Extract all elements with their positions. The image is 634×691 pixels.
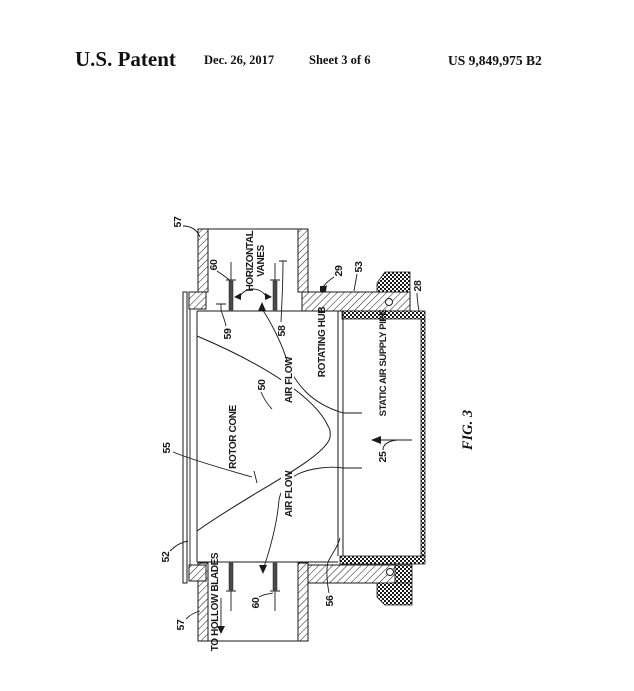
patent-drawing-svg: U.S. Patent Dec. 26, 2017 Sheet 3 of 6 U…	[0, 0, 634, 691]
label-52: 52	[160, 551, 172, 562]
pipe-bottom-wall	[340, 556, 425, 564]
label-50: 50	[256, 379, 268, 390]
leader-50	[261, 392, 272, 409]
vane-pivot-tee-59	[216, 304, 226, 310]
label-57-bottom: 57	[175, 619, 187, 630]
bottom-left-flange-foot	[189, 565, 206, 581]
leader-29	[323, 277, 334, 287]
figure-caption: FIG. 3	[460, 410, 476, 451]
label-59: 59	[222, 328, 234, 339]
label-28: 28	[412, 280, 424, 291]
top-left-flange-foot	[189, 292, 206, 309]
patent-header-sheet: Sheet 3 of 6	[309, 53, 370, 67]
horizontal-vane-top-left	[226, 262, 236, 310]
rotating-hub-bottom	[302, 565, 412, 605]
label-60-bottom: 60	[250, 597, 262, 608]
rotor-cone-profile-curve	[197, 336, 330, 531]
label-25: 25	[377, 451, 389, 462]
label-56: 56	[324, 595, 336, 606]
horizontal-vane-bottom-right	[270, 563, 280, 611]
hub-bolt-hole-top	[386, 299, 393, 306]
air-flow-arrow-bottom	[259, 565, 267, 574]
top-duct-left-wall	[198, 229, 208, 292]
air-feed-arrow-25	[371, 436, 412, 444]
label-vanes: VANES	[256, 244, 267, 276]
leader-58	[281, 261, 283, 322]
label-static-air-supply-pipe: STATIC AIR SUPPLY PIPE	[378, 310, 389, 417]
leader-57-top	[183, 226, 200, 237]
label-air-flow-top: AIR FLOW	[284, 356, 295, 403]
label-air-flow-bottom: AIR FLOW	[284, 470, 295, 517]
hub-seal-block-bottom	[377, 583, 412, 605]
leader-60-bottom	[259, 593, 273, 597]
leader-60-top	[217, 271, 230, 281]
leader-25	[383, 440, 397, 450]
pipe-right-wall	[421, 319, 425, 556]
hub-seal-block-top	[377, 272, 410, 292]
label-29: 29	[333, 265, 345, 276]
label-60-top: 60	[208, 259, 220, 270]
leader-59	[221, 310, 226, 326]
label-rotating-hub: ROTATING HUB	[317, 307, 328, 378]
patent-header: U.S. Patent Dec. 26, 2017 Sheet 3 of 6 U…	[75, 47, 542, 71]
outer-plate-52	[183, 292, 187, 583]
horizontal-vane-top-right	[270, 263, 280, 310]
leader-28	[417, 293, 419, 311]
air-flow-line-top	[262, 309, 362, 413]
bottom-duct-right-wall	[298, 563, 308, 641]
label-horizontal: HORIZONTAL	[245, 230, 256, 291]
hub-seal-corner-bottom	[395, 565, 412, 583]
label-58: 58	[276, 325, 288, 336]
hub-flange-bottom	[302, 565, 395, 583]
air-flow-line-bottom	[264, 467, 362, 567]
patent-header-date: Dec. 26, 2017	[204, 53, 274, 67]
figure-fig3: 57 60 HORIZONTAL VANES 59 58 29 53 28 RO…	[160, 216, 476, 651]
label-to-hollow-blades: TO HOLLOW BLADES	[210, 552, 221, 651]
bottom-outlet-duct	[189, 563, 308, 641]
top-duct-right-wall	[298, 229, 308, 292]
air-flow-arrow-top	[258, 302, 266, 311]
patent-header-title: U.S. Patent	[75, 47, 176, 71]
leader-53	[354, 274, 357, 291]
label-53: 53	[353, 261, 365, 272]
patent-sheet: U.S. Patent Dec. 26, 2017 Sheet 3 of 6 U…	[0, 0, 634, 691]
patent-header-number: US 9,849,975 B2	[448, 53, 542, 68]
label-57-top: 57	[172, 216, 184, 227]
label-rotor-cone: ROTOR CONE	[228, 404, 239, 468]
hub-bolt-hole-bottom	[387, 569, 394, 576]
label-55: 55	[161, 442, 173, 453]
rotor-cone-body	[183, 292, 338, 583]
horizontal-vane-bottom-left	[226, 563, 236, 611]
